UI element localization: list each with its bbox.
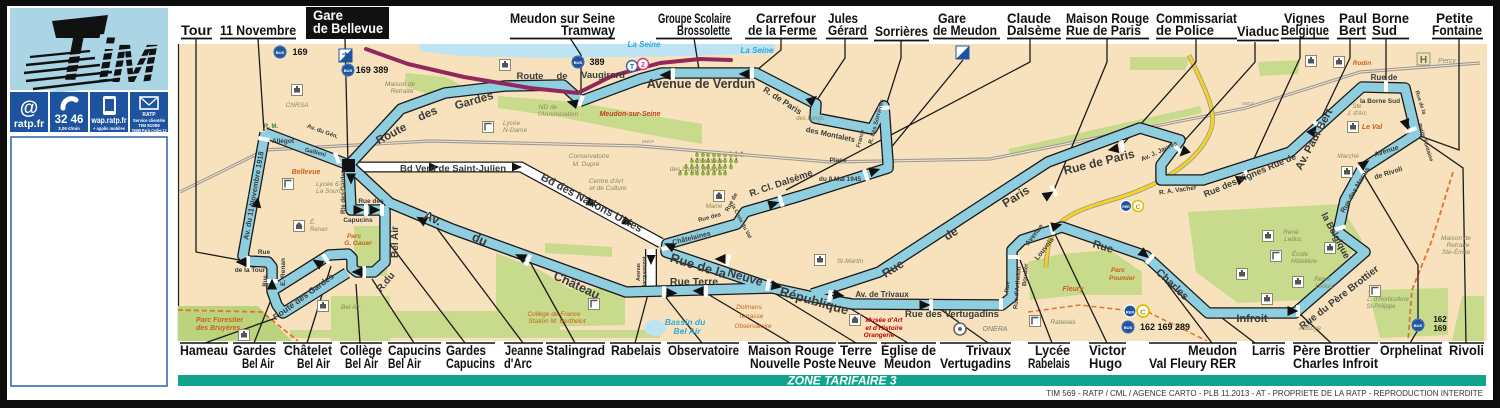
svg-text:Jacqueminot: Jacqueminot bbox=[642, 256, 648, 287]
svg-text:Marché: Marché bbox=[1337, 153, 1359, 160]
svg-text:Conservatoire: Conservatoire bbox=[569, 153, 610, 160]
svg-text:Bel Air: Bel Air bbox=[345, 356, 378, 371]
svg-text:des Bruyères: des Bruyères bbox=[196, 325, 240, 332]
svg-text:C: C bbox=[1140, 308, 1146, 317]
svg-text:Vertugadins: Vertugadins bbox=[940, 356, 1011, 371]
svg-text:de Bellevue: de Bellevue bbox=[313, 21, 383, 36]
svg-text:St-Martin: St-Martin bbox=[837, 258, 864, 265]
svg-text:Lycée: Lycée bbox=[503, 120, 521, 127]
svg-text:ratp.fr: ratp.fr bbox=[14, 118, 44, 130]
svg-text:Route: Route bbox=[517, 71, 544, 82]
svg-text:32 46: 32 46 bbox=[55, 114, 84, 126]
svg-text:H: H bbox=[1420, 55, 1427, 66]
svg-text:Sorrières: Sorrières bbox=[875, 24, 928, 39]
svg-text:du 8 Mai 1945: du 8 Mai 1945 bbox=[819, 176, 862, 183]
svg-text:Rue de: Rue de bbox=[1371, 73, 1398, 82]
svg-text:Terrasse: Terrasse bbox=[738, 313, 763, 320]
svg-text:BUS: BUS bbox=[574, 60, 583, 65]
svg-text:75599 Paris Cedex 12: 75599 Paris Cedex 12 bbox=[132, 128, 167, 133]
svg-text:Gérard: Gérard bbox=[828, 23, 867, 38]
svg-text:Hôtelière: Hôtelière bbox=[1291, 258, 1317, 265]
svg-text:Station M. Berthelot: Station M. Berthelot bbox=[528, 318, 586, 325]
svg-text:Rabelais: Rabelais bbox=[1028, 356, 1070, 371]
svg-text:Rue des: Rue des bbox=[358, 198, 384, 205]
svg-text:@: @ bbox=[20, 98, 39, 119]
svg-text:Mairie: Mairie bbox=[706, 204, 723, 210]
svg-text:Dalsème: Dalsème bbox=[1007, 23, 1061, 38]
svg-text:3,06 €/min: 3,06 €/min bbox=[58, 126, 80, 131]
svg-text:de la Ferme: de la Ferme bbox=[748, 23, 816, 38]
svg-text:Tour: Tour bbox=[181, 23, 213, 38]
svg-text:Allégot: Allégot bbox=[272, 138, 295, 145]
svg-text:Ste-Émile: Ste-Émile bbox=[1442, 247, 1471, 256]
svg-text:Maison de: Maison de bbox=[1441, 235, 1471, 242]
svg-text:C: C bbox=[1136, 204, 1141, 211]
svg-text:de: de bbox=[556, 71, 567, 82]
svg-text:J. d'Arc: J. d'Arc bbox=[1346, 111, 1367, 117]
svg-text:de la Tour: de la Tour bbox=[235, 267, 266, 274]
svg-text:d'Arc: d'Arc bbox=[504, 356, 532, 371]
svg-text:Hugo: Hugo bbox=[1089, 356, 1122, 371]
svg-text:Rue des Vertugadins: Rue des Vertugadins bbox=[905, 309, 999, 320]
svg-text:Rue de Paris: Rue de Paris bbox=[1066, 23, 1141, 38]
svg-text:de Police: de Police bbox=[1156, 23, 1214, 38]
svg-text:Musée d'Art: Musée d'Art bbox=[866, 317, 904, 324]
svg-text:Bel Air: Bel Air bbox=[390, 226, 401, 258]
svg-text:11 Novembre: 11 Novembre bbox=[220, 23, 296, 38]
svg-text:St-Philippe: St-Philippe bbox=[1366, 304, 1396, 310]
svg-text:École: École bbox=[1292, 249, 1309, 258]
svg-text:La Seine: La Seine bbox=[741, 46, 774, 55]
svg-text:et d'Histoire: et d'Histoire bbox=[865, 325, 903, 332]
svg-text:Ste: Ste bbox=[1352, 104, 1362, 110]
svg-text:Rue: Rue bbox=[258, 249, 271, 256]
svg-text:É.: É. bbox=[310, 219, 316, 226]
svg-text:169: 169 bbox=[1433, 324, 1447, 333]
svg-text:E. Renan: E. Renan bbox=[280, 258, 287, 286]
svg-text:Nouvelle Poste: Nouvelle Poste bbox=[750, 356, 836, 371]
svg-text:René: René bbox=[1283, 229, 1299, 236]
svg-text:Bel Air: Bel Air bbox=[297, 356, 330, 371]
svg-text:Maison de: Maison de bbox=[385, 81, 415, 88]
svg-text:Orphelinat: Orphelinat bbox=[1380, 343, 1442, 358]
svg-text:169: 169 bbox=[292, 47, 307, 57]
svg-text:Neuve: Neuve bbox=[838, 356, 876, 371]
svg-text:Poumier: Poumier bbox=[1109, 275, 1135, 282]
svg-text:Dolmens: Dolmens bbox=[736, 304, 762, 311]
svg-text:Cimétière: Cimétière bbox=[695, 158, 723, 165]
svg-text:Rue: Rue bbox=[1005, 280, 1012, 292]
svg-text:Meudon-sur-Seine: Meudon-sur-Seine bbox=[599, 111, 660, 118]
svg-text:Viaduc: Viaduc bbox=[1237, 24, 1279, 39]
svg-text:wap.ratp.fr: wap.ratp.fr bbox=[91, 115, 127, 125]
svg-text:René: René bbox=[1314, 276, 1330, 283]
svg-text:+ applis mobiles: + applis mobiles bbox=[93, 126, 125, 131]
svg-text:Leduc: Leduc bbox=[1284, 236, 1302, 243]
svg-text:RER: RER bbox=[1122, 205, 1130, 209]
svg-text:Infroit: Infroit bbox=[1236, 313, 1267, 325]
svg-text:Place: Place bbox=[830, 157, 847, 164]
svg-text:Vaugirard: Vaugirard bbox=[581, 70, 625, 81]
svg-text:Bel Air: Bel Air bbox=[341, 304, 361, 311]
svg-text:Renan: Renan bbox=[310, 227, 328, 233]
svg-text:Rabelais: Rabelais bbox=[611, 343, 661, 358]
svg-text:Rabelais: Rabelais bbox=[1050, 319, 1076, 326]
svg-text:RER: RER bbox=[1126, 310, 1135, 315]
svg-text:Fontaine: Fontaine bbox=[1432, 23, 1482, 38]
svg-text:Larris: Larris bbox=[1252, 343, 1285, 358]
svg-text:Leduc: Leduc bbox=[1315, 283, 1333, 290]
svg-text:G. Gauer: G. Gauer bbox=[344, 240, 372, 247]
svg-text:T: T bbox=[630, 64, 635, 71]
svg-text:Rivoli: Rivoli bbox=[1449, 343, 1484, 358]
svg-text:Rue Terre: Rue Terre bbox=[670, 276, 718, 288]
svg-text:Belgique: Belgique bbox=[1281, 23, 1329, 38]
svg-text:SNCF: SNCF bbox=[642, 139, 655, 144]
svg-text:Collège de France: Collège de France bbox=[527, 311, 580, 318]
svg-text:Sud: Sud bbox=[1372, 23, 1397, 38]
svg-text:Bd Verd de Saint-Julien: Bd Verd de Saint-Julien bbox=[400, 164, 506, 175]
svg-text:Charles Infroit: Charles Infroit bbox=[1293, 356, 1378, 371]
svg-text:ND de: ND de bbox=[539, 104, 558, 111]
svg-text:des Longs: des Longs bbox=[796, 116, 824, 122]
svg-text:Parc Forestier: Parc Forestier bbox=[196, 317, 244, 324]
svg-text:Observatoire: Observatoire bbox=[668, 343, 739, 358]
svg-text:N-Dame: N-Dame bbox=[503, 127, 528, 134]
svg-text:Parc: Parc bbox=[347, 233, 361, 240]
svg-text:Rue: Rue bbox=[263, 275, 269, 287]
svg-text:TIM 569 - RATP / CML / AGENCE: TIM 569 - RATP / CML / AGENCE CARTO - PL… bbox=[1046, 389, 1483, 398]
svg-text:162: 162 bbox=[1433, 315, 1447, 324]
svg-text:Retraite: Retraite bbox=[1447, 242, 1470, 249]
svg-text:ONERA: ONERA bbox=[983, 326, 1008, 333]
svg-text:Hameau: Hameau bbox=[180, 343, 228, 358]
svg-text:des Longs Réages: des Longs Réages bbox=[670, 166, 725, 173]
svg-text:2: 2 bbox=[641, 62, 645, 69]
svg-text:L. d'Horticulture: L. d'Horticulture bbox=[1367, 297, 1409, 303]
svg-text:l'Annonciation: l'Annonciation bbox=[538, 111, 579, 118]
svg-text:M. Dupré: M. Dupré bbox=[573, 161, 600, 168]
svg-text:Brossolette: Brossolette bbox=[677, 23, 730, 38]
svg-text:Val Fleury RER: Val Fleury RER bbox=[1149, 356, 1236, 371]
svg-text:Av. de Trivaux: Av. de Trivaux bbox=[855, 290, 909, 299]
svg-text:Abboye: Abboye bbox=[1298, 325, 1321, 332]
svg-text:169 389: 169 389 bbox=[356, 65, 389, 75]
svg-text:Centre d'Art: Centre d'Art bbox=[589, 178, 625, 185]
svg-text:Stalingrad: Stalingrad bbox=[546, 343, 605, 358]
svg-text:Meudon: Meudon bbox=[884, 356, 931, 371]
svg-text:de Meudon: de Meudon bbox=[933, 23, 997, 38]
svg-text:Bert: Bert bbox=[1339, 23, 1366, 38]
svg-text:SNCF: SNCF bbox=[1242, 101, 1255, 106]
svg-text:Capucins: Capucins bbox=[446, 356, 495, 371]
svg-text:389: 389 bbox=[589, 57, 604, 67]
svg-text:BUS: BUS bbox=[1124, 325, 1133, 330]
svg-text:BUS: BUS bbox=[276, 50, 285, 55]
svg-text:Tramway: Tramway bbox=[561, 23, 615, 38]
svg-text:Avenue de Verdun: Avenue de Verdun bbox=[647, 77, 756, 91]
svg-text:Percy: Percy bbox=[1438, 58, 1456, 65]
svg-text:et de Culture: et de Culture bbox=[589, 185, 627, 192]
svg-text:Bellevue: Bellevue bbox=[292, 169, 321, 176]
svg-text:la Borne Sud: la Borne Sud bbox=[1360, 98, 1400, 105]
svg-text:ZONE TARIFAIRE 3: ZONE TARIFAIRE 3 bbox=[786, 374, 896, 388]
svg-text:Bel Air: Bel Air bbox=[673, 326, 701, 336]
svg-text:R. M.: R. M. bbox=[264, 124, 279, 130]
svg-text:Bel Air: Bel Air bbox=[242, 356, 274, 371]
svg-text:BUS: BUS bbox=[344, 68, 353, 73]
svg-text:Bel Air: Bel Air bbox=[388, 356, 421, 371]
svg-text:Observatoire: Observatoire bbox=[734, 323, 772, 330]
svg-text:La Seine: La Seine bbox=[628, 40, 661, 49]
svg-text:Lycée 67: Lycée 67 bbox=[316, 181, 343, 188]
svg-text:Parc: Parc bbox=[1111, 267, 1125, 274]
svg-text:Le Val: Le Val bbox=[1362, 124, 1383, 131]
svg-text:Orangerie: Orangerie bbox=[864, 332, 895, 339]
svg-text:Capucins: Capucins bbox=[343, 217, 373, 224]
svg-text:162 169 289: 162 169 289 bbox=[1140, 322, 1190, 332]
svg-text:BUS: BUS bbox=[1414, 323, 1423, 328]
svg-text:CNRSA: CNRSA bbox=[286, 102, 309, 109]
svg-text:Fleury: Fleury bbox=[1062, 286, 1084, 293]
svg-text:Rodin: Rodin bbox=[1353, 60, 1371, 67]
svg-text:Retraite: Retraite bbox=[391, 88, 414, 95]
svg-text:La Source: La Source bbox=[316, 188, 346, 195]
